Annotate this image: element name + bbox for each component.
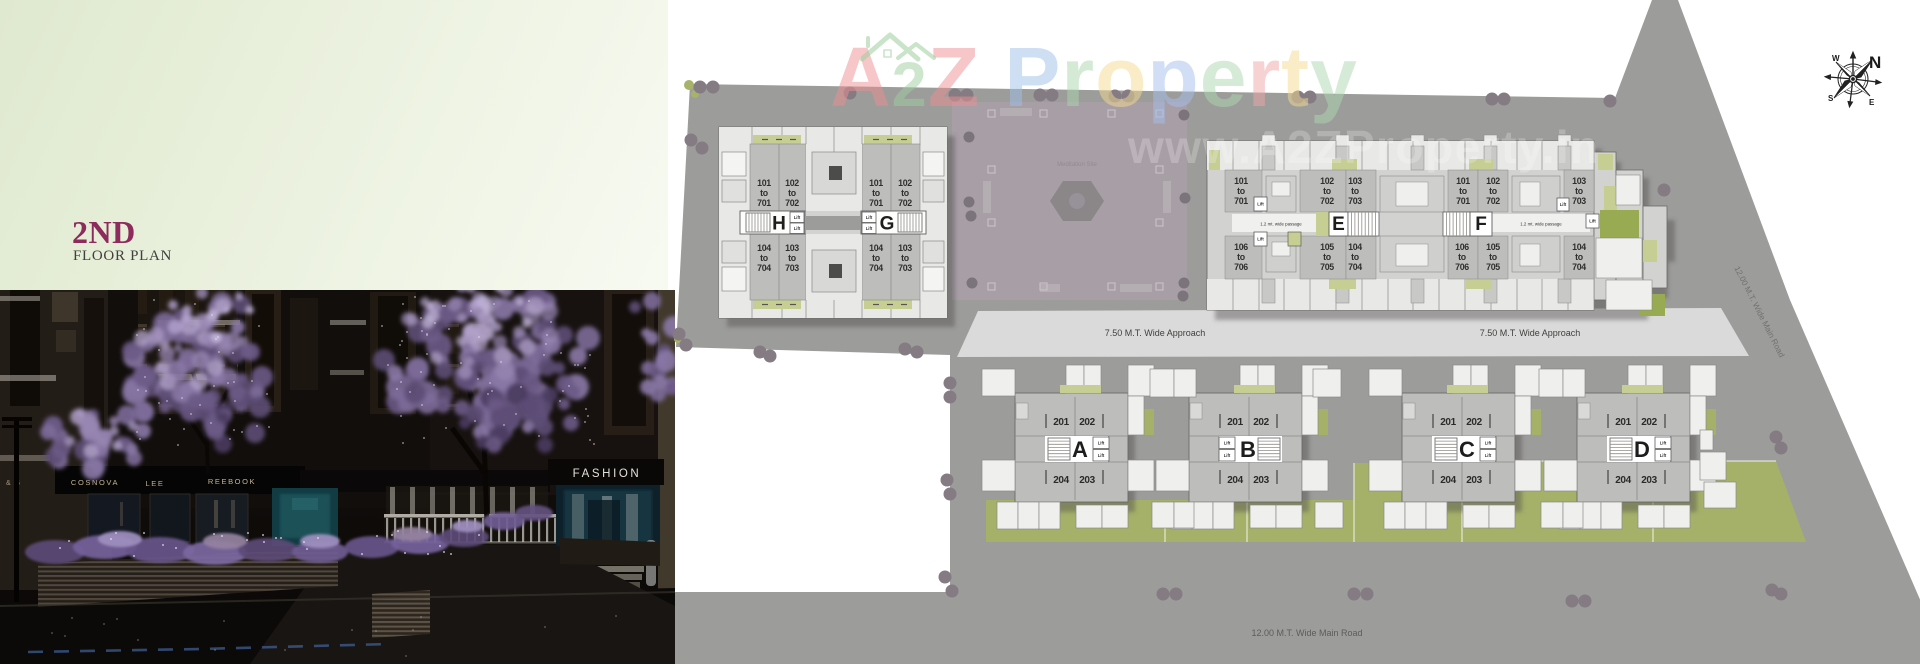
svg-text:E: E: [1332, 214, 1345, 235]
svg-text:203: 203: [1641, 475, 1657, 486]
svg-text:7.50 M.T. Wide Approach: 7.50 M.T. Wide Approach: [1480, 328, 1581, 338]
svg-text:Lift: Lift: [1485, 453, 1492, 458]
svg-text:FASHION: FASHION: [573, 468, 642, 480]
svg-text:Lift: Lift: [1660, 440, 1667, 445]
svg-text:N: N: [1869, 53, 1881, 72]
svg-text:Lift: Lift: [794, 215, 801, 220]
svg-text:201: 201: [1053, 417, 1069, 428]
svg-text:202: 202: [1641, 417, 1657, 428]
svg-text:S: S: [1828, 94, 1834, 103]
svg-text:204: 204: [1053, 475, 1069, 486]
svg-text:Lift: Lift: [1098, 453, 1105, 458]
svg-text:G: G: [880, 214, 895, 235]
svg-text:203: 203: [1253, 475, 1269, 486]
svg-text:204: 204: [1227, 475, 1243, 486]
svg-text:LEE: LEE: [146, 479, 165, 488]
svg-text:Lift: Lift: [1257, 202, 1264, 207]
svg-text:H: H: [772, 214, 786, 235]
svg-text:Lift: Lift: [1560, 202, 1567, 207]
svg-text:F: F: [1475, 214, 1487, 235]
svg-text:A: A: [1072, 437, 1088, 462]
svg-text:204: 204: [1440, 475, 1456, 486]
svg-text:Lift: Lift: [1257, 237, 1264, 242]
svg-text:204: 204: [1615, 475, 1631, 486]
svg-text:1.2 mt. wide passage: 1.2 mt. wide passage: [1520, 222, 1562, 227]
svg-text:Lift: Lift: [1224, 440, 1231, 445]
svg-text:201: 201: [1440, 417, 1456, 428]
svg-text:Lift: Lift: [1485, 440, 1492, 445]
svg-text:1.2 mt. wide passage: 1.2 mt. wide passage: [1260, 222, 1302, 227]
svg-text:203: 203: [1079, 475, 1095, 486]
svg-text:203: 203: [1466, 475, 1482, 486]
svg-text:202: 202: [1253, 417, 1269, 428]
svg-text:Lift: Lift: [1589, 219, 1596, 224]
svg-text:202: 202: [1079, 417, 1095, 428]
svg-text:www.A2ZProperty.in: www.A2ZProperty.in: [1127, 121, 1600, 173]
svg-text:12.00 M.T. Wide Main Road: 12.00 M.T. Wide Main Road: [1251, 628, 1362, 638]
svg-text:C: C: [1459, 437, 1475, 462]
svg-text:202: 202: [1466, 417, 1482, 428]
svg-text:Lift: Lift: [1660, 453, 1667, 458]
svg-text:Lift: Lift: [866, 215, 873, 220]
svg-text:E: E: [1869, 98, 1875, 107]
svg-text:Lift: Lift: [1224, 453, 1231, 458]
svg-text:B: B: [1240, 437, 1256, 462]
svg-text:7.50 M.T. Wide Approach: 7.50 M.T. Wide Approach: [1105, 328, 1206, 338]
svg-text:REEBOOK: REEBOOK: [208, 477, 256, 486]
svg-text:D: D: [1634, 437, 1650, 462]
svg-text:W: W: [1832, 54, 1840, 63]
svg-text:Meditation Site: Meditation Site: [1057, 162, 1097, 168]
svg-text:Lift: Lift: [1098, 440, 1105, 445]
svg-text:201: 201: [1615, 417, 1631, 428]
svg-text:A2Z Property: A2Z Property: [830, 30, 1358, 124]
svg-text:Lift: Lift: [794, 226, 801, 231]
svg-text:201: 201: [1227, 417, 1243, 428]
svg-text:Lift: Lift: [866, 226, 873, 231]
